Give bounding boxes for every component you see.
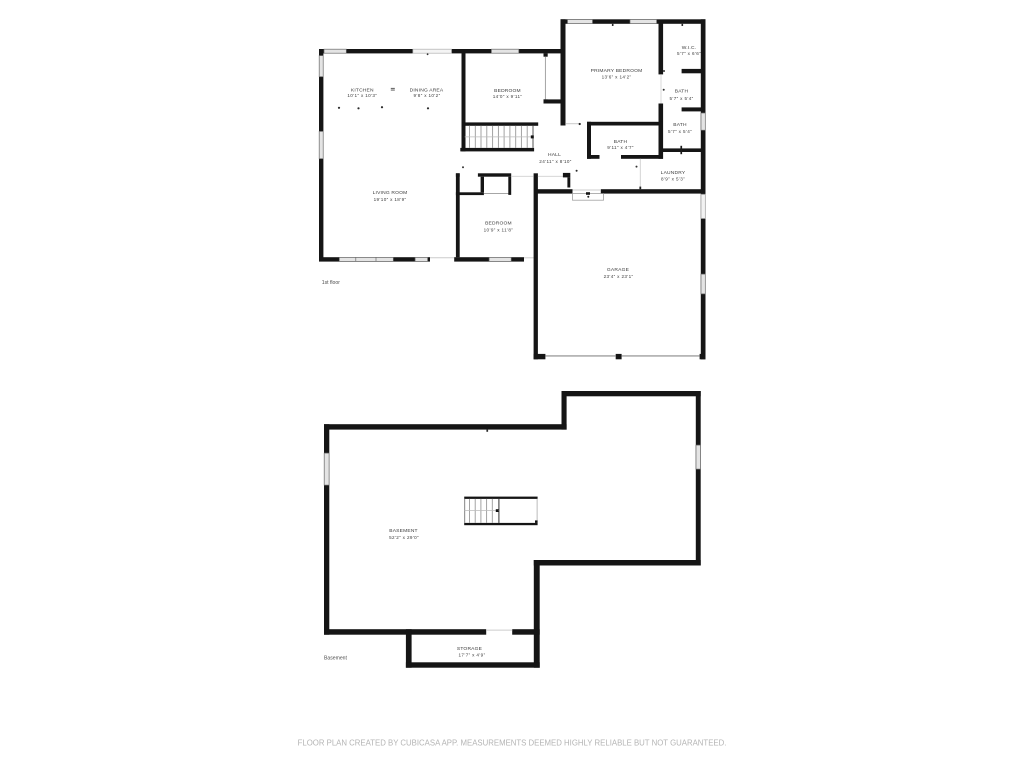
svg-text:BATH: BATH <box>675 89 689 95</box>
svg-text:5’7” x 6’6”: 5’7” x 6’6” <box>677 51 701 56</box>
svg-text:9’11” x 4’7”: 9’11” x 4’7” <box>607 145 634 150</box>
svg-text:BEDROOM: BEDROOM <box>485 221 512 227</box>
svg-text:BATH: BATH <box>614 139 628 145</box>
svg-text:9’8” x 10’2”: 9’8” x 10’2” <box>414 93 441 98</box>
svg-text:24’11” x 8’10”: 24’11” x 8’10” <box>539 159 572 164</box>
svg-text:LAUNDRY: LAUNDRY <box>661 170 686 176</box>
svg-text:PRIMARY BEDROOM: PRIMARY BEDROOM <box>591 68 643 74</box>
svg-text:FLOOR PLAN CREATED BY CUBICASA: FLOOR PLAN CREATED BY CUBICASA APP. MEAS… <box>298 739 727 748</box>
svg-text:17’7” x 4’9”: 17’7” x 4’9” <box>459 653 486 658</box>
svg-text:8’9” x 5’3”: 8’9” x 5’3” <box>661 176 685 181</box>
svg-text:5’7” x 5’4”: 5’7” x 5’4” <box>669 96 693 101</box>
svg-text:HALL: HALL <box>548 152 561 158</box>
svg-text:LIVING ROOM: LIVING ROOM <box>373 190 408 196</box>
svg-text:5’7” x 5’4”: 5’7” x 5’4” <box>668 129 692 134</box>
svg-text:19’10” x 18’9”: 19’10” x 18’9” <box>374 197 407 202</box>
svg-text:GARAGE: GARAGE <box>607 267 630 273</box>
svg-text:BASEMENT: BASEMENT <box>389 528 418 534</box>
svg-text:23’4” x 23’1”: 23’4” x 23’1” <box>604 274 634 279</box>
svg-text:52’2” x 29’0”: 52’2” x 29’0” <box>389 535 419 540</box>
svg-text:10’1” x 10’3”: 10’1” x 10’3” <box>347 93 377 98</box>
svg-text:10’9” x 11’8”: 10’9” x 11’8” <box>484 228 514 233</box>
svg-text:W.I.C.: W.I.C. <box>682 45 697 51</box>
svg-text:13’6” x 14’2”: 13’6” x 14’2” <box>602 75 632 80</box>
svg-text:14’0” x 9’11”: 14’0” x 9’11” <box>493 94 523 99</box>
svg-text:BEDROOM: BEDROOM <box>494 88 521 94</box>
svg-text:STORAGE: STORAGE <box>457 646 483 652</box>
svg-text:1st floor: 1st floor <box>322 280 340 286</box>
svg-text:Basement: Basement <box>324 656 348 662</box>
svg-text:BATH: BATH <box>673 122 687 128</box>
